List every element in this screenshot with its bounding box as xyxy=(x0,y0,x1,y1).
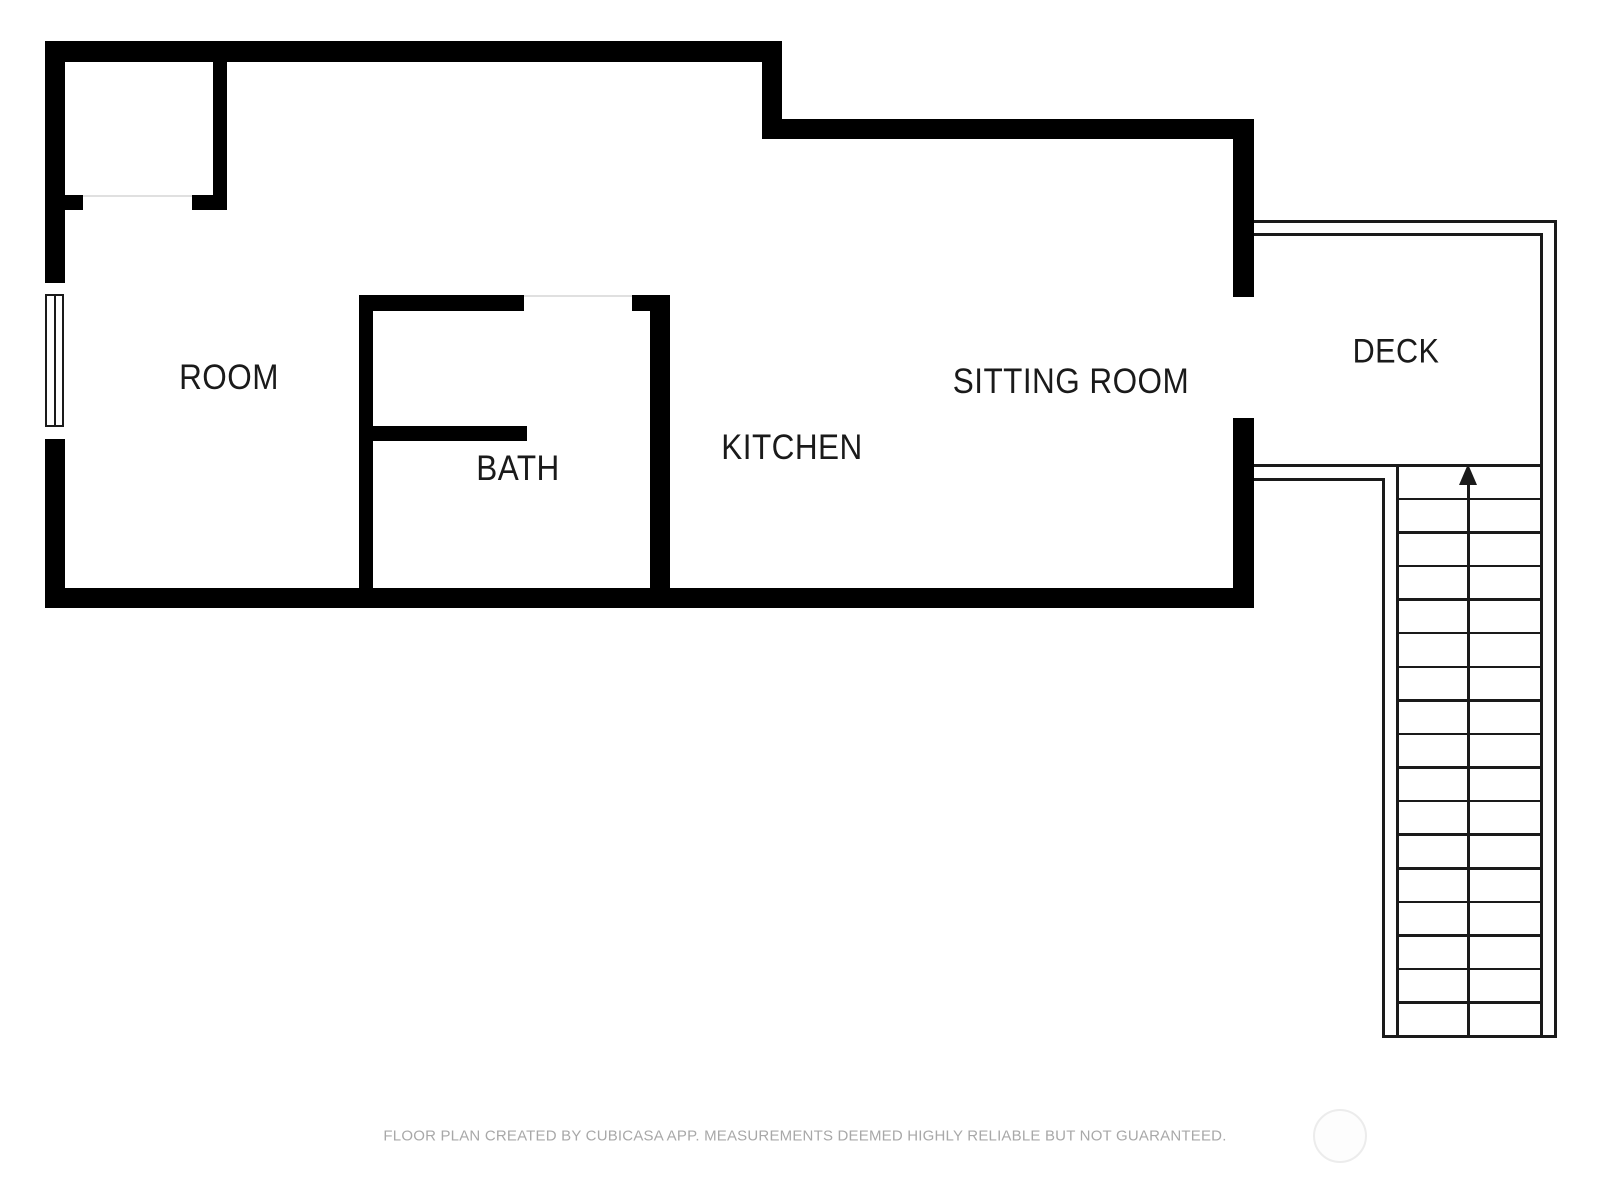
stair-tread xyxy=(1399,968,1540,971)
deck-inner-top-edge xyxy=(1254,233,1543,236)
bath-door-threshold xyxy=(524,295,632,297)
closet-right-wall xyxy=(213,62,227,210)
top-wall-right xyxy=(762,119,1254,139)
floor-plan: FLOOR PLAN CREATED BY CUBICASA APP. MEAS… xyxy=(0,0,1600,1200)
room-label-room: ROOM xyxy=(179,358,279,398)
landing-right-edge xyxy=(1382,478,1385,1038)
top-wall-left xyxy=(45,41,782,62)
room-label-kitchen: KITCHEN xyxy=(721,428,862,468)
bath-right-wall xyxy=(650,295,670,608)
bath-top-wall xyxy=(359,295,524,311)
stair-tread xyxy=(1399,934,1540,937)
stairs-bottom-edge xyxy=(1382,1035,1557,1038)
landing-top-edge xyxy=(1254,478,1385,481)
stair-tread xyxy=(1399,699,1540,702)
stair-tread xyxy=(1399,833,1540,836)
closet-door-stub-left xyxy=(65,195,83,210)
stair-tread xyxy=(1399,766,1540,769)
stair-tread xyxy=(1399,733,1540,736)
closet-door-stub-right xyxy=(192,195,227,210)
room-label-sitting-room: SITTING ROOM xyxy=(953,362,1189,402)
stair-tread xyxy=(1399,1001,1540,1004)
footer-disclaimer: FLOOR PLAN CREATED BY CUBICASA APP. MEAS… xyxy=(383,1128,1226,1145)
closet-door-threshold xyxy=(83,195,192,197)
stair-tread xyxy=(1399,666,1540,669)
stair-tread xyxy=(1399,867,1540,870)
stair-tread xyxy=(1399,800,1540,803)
deck-outer-top-edge xyxy=(1254,220,1557,223)
bath-left-wall xyxy=(359,295,373,608)
stair-tread xyxy=(1399,498,1540,501)
stair-tread xyxy=(1399,565,1540,568)
stairs-left-edge xyxy=(1396,464,1399,1038)
stairs-direction-line xyxy=(1467,485,1470,1035)
stairs-up-arrowhead-icon xyxy=(1459,464,1477,485)
stair-tread xyxy=(1399,598,1540,601)
room-label-deck: DECK xyxy=(1353,333,1440,372)
window-mullion xyxy=(54,296,56,425)
stair-tread xyxy=(1399,901,1540,904)
watermark-circle xyxy=(1313,1109,1367,1163)
stair-tread xyxy=(1399,632,1540,635)
right-wall-upper xyxy=(1233,119,1254,297)
stair-tread xyxy=(1399,531,1540,534)
room-label-bath: BATH xyxy=(476,449,559,489)
left-wall-lower xyxy=(45,439,65,608)
left-wall-upper xyxy=(45,41,65,283)
right-wall-lower xyxy=(1233,418,1254,608)
deck-inner-right-edge xyxy=(1540,233,1543,1038)
bath-partition-wall xyxy=(359,426,527,441)
deck-outer-right-edge xyxy=(1554,220,1557,1038)
